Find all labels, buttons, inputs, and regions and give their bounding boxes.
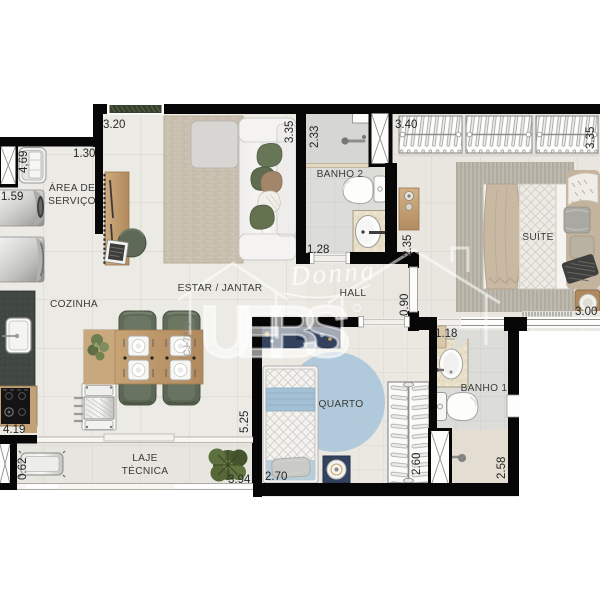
svg-text:3.40: 3.40 — [395, 119, 417, 131]
svg-text:2.35: 2.35 — [402, 235, 414, 257]
svg-text:HALL: HALL — [340, 288, 367, 299]
svg-text:2.60: 2.60 — [411, 453, 423, 475]
svg-text:QUARTO: QUARTO — [318, 399, 363, 410]
svg-text:3.35: 3.35 — [284, 121, 296, 143]
svg-text:0.90: 0.90 — [399, 294, 411, 316]
svg-text:BANHO 1: BANHO 1 — [461, 383, 508, 394]
svg-text:1.59: 1.59 — [1, 191, 23, 203]
svg-text:SUÍTE: SUÍTE — [522, 230, 554, 243]
svg-text:UEBS: UEBS — [200, 292, 350, 373]
svg-text:0.62: 0.62 — [17, 458, 29, 480]
svg-text:1.18: 1.18 — [435, 328, 457, 340]
svg-text:TÉCNICA: TÉCNICA — [122, 464, 169, 477]
svg-text:CJ-7870: CJ-7870 — [182, 322, 192, 356]
svg-text:2.70: 2.70 — [265, 471, 287, 483]
svg-text:ESTAR / JANTAR: ESTAR / JANTAR — [178, 283, 263, 294]
svg-text:LAJE: LAJE — [132, 453, 158, 464]
svg-text:4.19: 4.19 — [3, 424, 25, 436]
svg-text:ÁREA DE: ÁREA DE — [49, 181, 95, 194]
svg-text:1.30: 1.30 — [73, 148, 95, 160]
svg-text:BANHO 2: BANHO 2 — [317, 169, 364, 180]
svg-text:3.94: 3.94 — [228, 474, 251, 486]
svg-text:2.58: 2.58 — [496, 457, 508, 479]
svg-text:SERVIÇO: SERVIÇO — [48, 196, 96, 207]
svg-text:3.35: 3.35 — [585, 127, 597, 149]
svg-text:5.25: 5.25 — [239, 411, 251, 433]
svg-text:1.28: 1.28 — [307, 244, 329, 256]
svg-text:2.33: 2.33 — [309, 126, 321, 148]
svg-text:3.20: 3.20 — [103, 119, 125, 131]
svg-text:3.00: 3.00 — [575, 306, 597, 318]
svg-text:4,69: 4,69 — [18, 151, 30, 173]
svg-text:COZINHA: COZINHA — [50, 299, 98, 310]
svg-text:Donna: Donna — [288, 255, 377, 291]
